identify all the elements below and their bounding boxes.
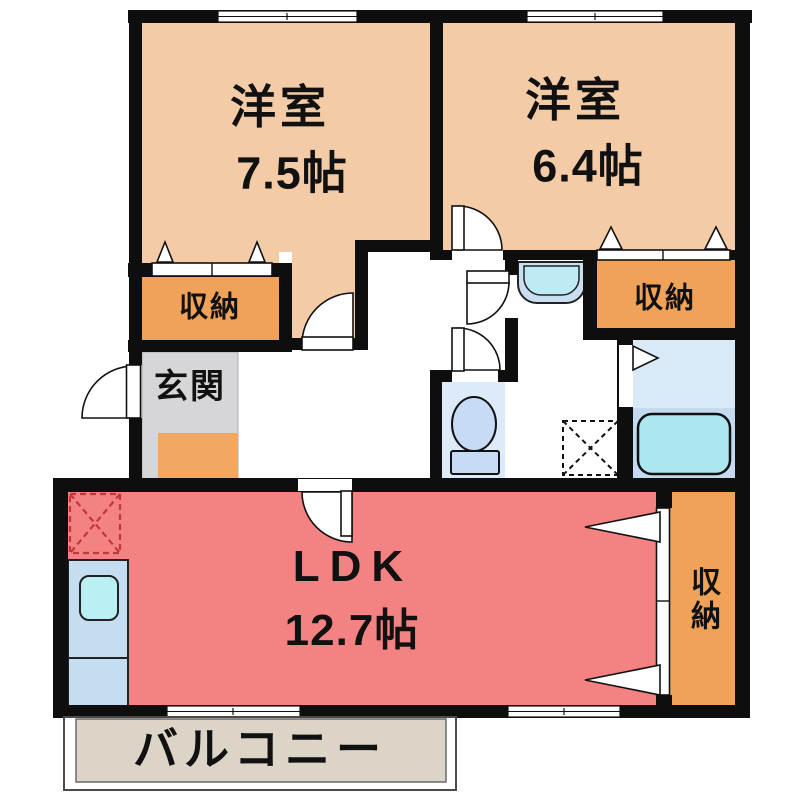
entrance-label: 玄関 [154,370,226,404]
storage-left-label: 収納 [179,294,241,323]
ldk-floor [68,492,656,705]
wall-toilet-top-right [498,370,518,382]
toilet-bowl-shape [452,397,496,451]
wall-bedroom1-door-jamb-left [292,338,302,350]
wall-bedroom1-door-jamb-right [353,338,368,350]
wall-toilet-left [430,370,442,480]
washbasin-bowl-shape [524,266,579,295]
wall-storage-left-right [279,263,292,352]
wall-left-upper [129,10,142,365]
toilet-door [452,328,500,371]
window-ldk-balcony-right [508,706,620,717]
wall-ldk-closet-top [656,478,672,508]
wall-left-lower [129,418,142,482]
floorplan-canvas: 洋室 7.5帖 洋室 6.4帖 収納 収納 玄関 LDK 12.7帖 収納 バル… [0,0,800,800]
window-ldk-balcony-left [167,706,300,717]
ldk-size-label: 12.7帖 [285,609,420,653]
window-bedroom2 [527,11,663,22]
wall-ldk-left [53,478,68,718]
wall-hall-top [355,240,443,252]
wall-storage-left-bottom [128,340,292,352]
balcony-label: バルコニー [133,727,387,772]
wall-storage-right-left [583,250,597,340]
kitchen-sink-shape [80,576,118,620]
wall-storage-right-bottom [583,328,750,340]
wall-bedroom-divider [430,10,443,260]
toilet-tank-shape [451,451,499,474]
ldk-name-label: LDK [293,545,413,589]
bathtub-shape [638,414,730,474]
entrance-mat [158,433,238,480]
bedroom1-size-label: 7.5帖 [236,151,348,196]
floorplan-drawing [0,0,800,800]
wall-hall-left [355,240,368,350]
wall-ldk-closet-bottom [656,695,672,718]
bedroom1-name-label: 洋室 [230,84,330,130]
wall-ldk-top [53,478,750,492]
bathroom-upper-floor [633,340,735,408]
bedroom2-name-label: 洋室 [525,77,625,123]
bedroom1-floor [142,23,430,252]
washer-pan-shape [563,421,618,475]
storage-ldk-label: 収納 [687,566,717,634]
window-bedroom1 [218,11,357,22]
wall-right [735,10,750,718]
entrance-door [82,365,141,418]
washroom-door [467,271,509,324]
storage-right-label: 収納 [634,285,696,314]
bedroom2-size-label: 6.4帖 [532,144,644,189]
